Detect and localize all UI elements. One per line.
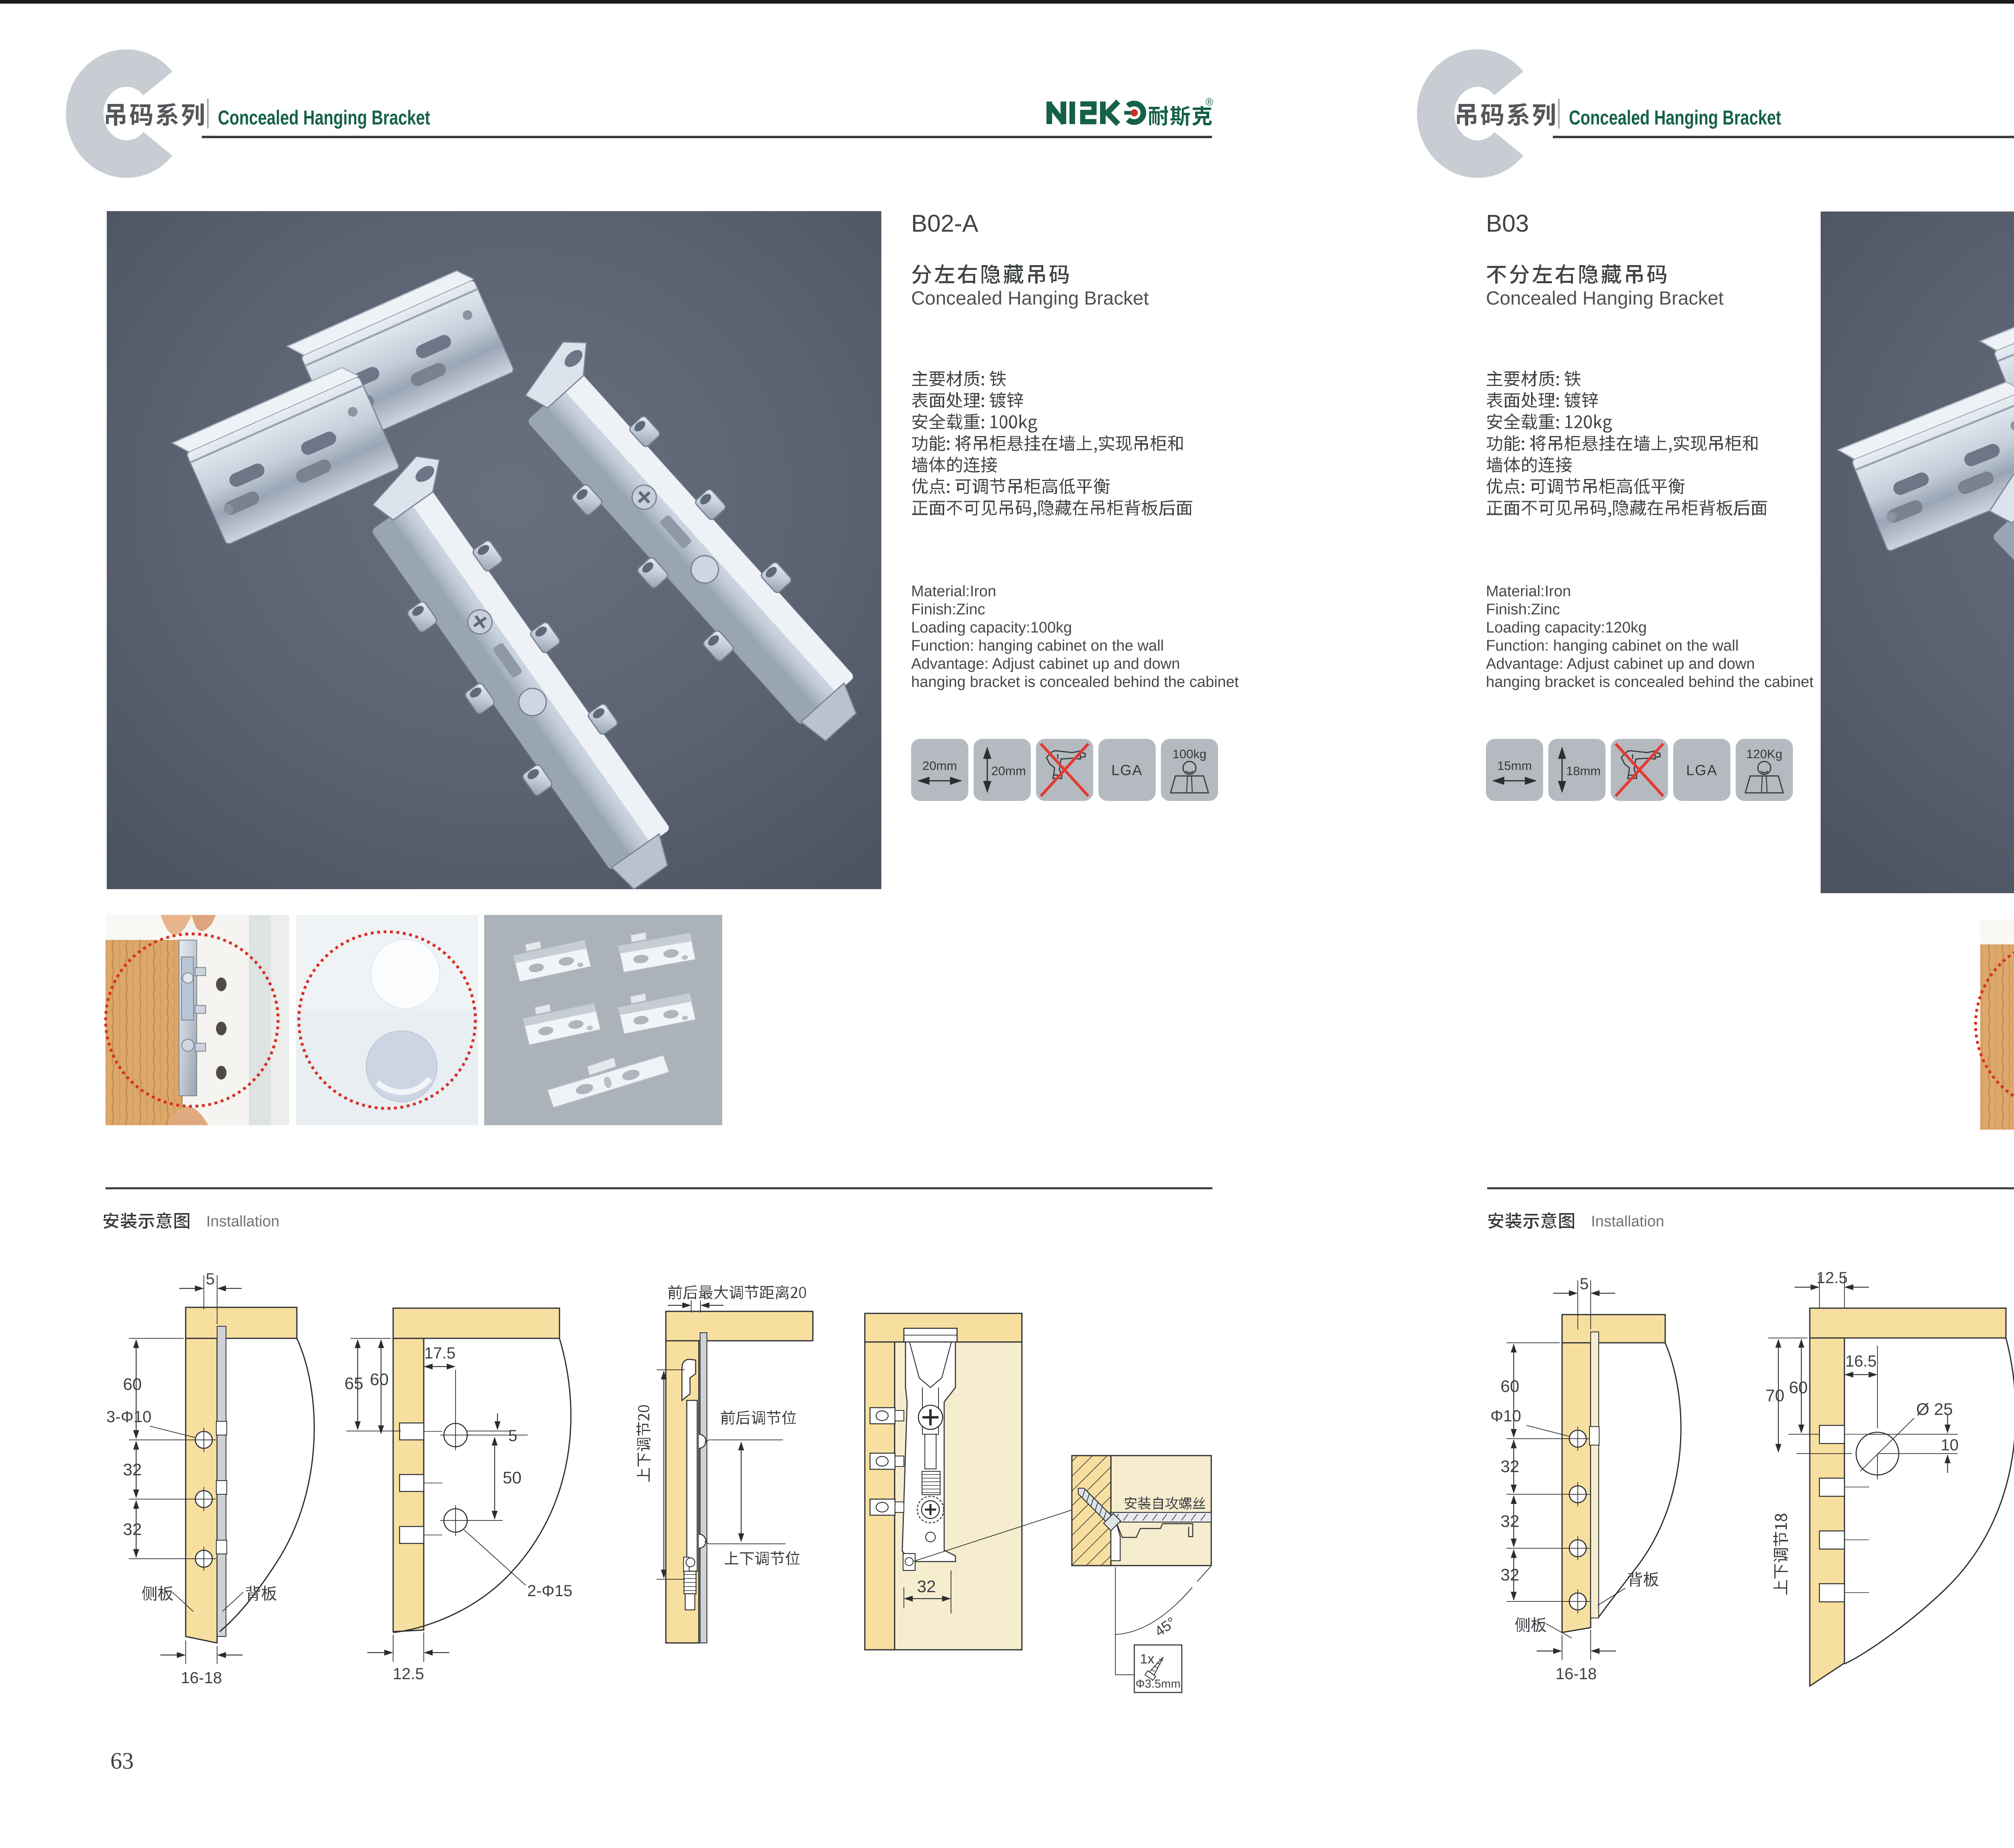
svg-text:5: 5 [508, 1427, 517, 1445]
svg-text:Advantage: Adjust cabinet up a: Advantage: Adjust cabinet up and down [1486, 655, 1755, 672]
svg-text:70: 70 [1765, 1386, 1784, 1405]
svg-text:15mm: 15mm [1497, 759, 1532, 773]
svg-text:Function: hanging cabinet on t: Function: hanging cabinet on the wall [911, 637, 1164, 654]
svg-text:60: 60 [1500, 1377, 1519, 1396]
svg-text:10: 10 [1941, 1436, 1959, 1454]
svg-text:1x: 1x [1140, 1651, 1154, 1667]
svg-text:60: 60 [1789, 1378, 1808, 1397]
svg-text:32: 32 [123, 1520, 142, 1539]
svg-text:B03: B03 [1486, 210, 1529, 237]
svg-text:Concealed Hanging Bracket: Concealed Hanging Bracket [911, 287, 1149, 309]
svg-text:45°: 45° [1152, 1614, 1179, 1640]
svg-text:®: ® [1206, 96, 1213, 108]
svg-text:12.5: 12.5 [393, 1665, 424, 1683]
svg-text:63: 63 [110, 1748, 134, 1774]
svg-text:Finish:Zinc: Finish:Zinc [1486, 601, 1560, 618]
svg-text:Finish:Zinc: Finish:Zinc [911, 601, 985, 618]
svg-text:Installation: Installation [1591, 1213, 1664, 1230]
svg-text:32: 32 [1500, 1457, 1519, 1476]
svg-text:16.5: 16.5 [1845, 1352, 1877, 1370]
svg-text:B02-A: B02-A [911, 210, 978, 237]
svg-text:hanging bracket is concealed b: hanging bracket is concealed behind the … [1486, 674, 1814, 691]
svg-text:Loading capacity:120kg: Loading capacity:120kg [1486, 619, 1647, 636]
svg-text:Φ10: Φ10 [1490, 1407, 1521, 1425]
svg-text:20mm: 20mm [991, 764, 1026, 778]
svg-text:32: 32 [1500, 1565, 1519, 1584]
svg-text:120Kg: 120Kg [1746, 747, 1782, 761]
svg-text:50: 50 [503, 1468, 522, 1487]
svg-text:5: 5 [206, 1270, 215, 1288]
svg-text:Φ3.5mm: Φ3.5mm [1135, 1678, 1181, 1690]
svg-text:LGA: LGA [1686, 762, 1718, 778]
svg-text:17.5: 17.5 [424, 1344, 456, 1362]
svg-text:32: 32 [917, 1577, 936, 1596]
svg-text:65: 65 [344, 1374, 363, 1393]
svg-text:Concealed Hanging Bracket: Concealed Hanging Bracket [1569, 106, 1781, 129]
svg-text:2-Φ15: 2-Φ15 [527, 1582, 572, 1600]
svg-text:12.5: 12.5 [1816, 1269, 1848, 1287]
svg-text:Advantage: Adjust cabinet up a: Advantage: Adjust cabinet up and down [911, 655, 1180, 672]
svg-text:Function: hanging cabinet on t: Function: hanging cabinet on the wall [1486, 637, 1738, 654]
svg-text:Concealed Hanging Bracket: Concealed Hanging Bracket [1486, 287, 1724, 309]
svg-text:Material:Iron: Material:Iron [1486, 583, 1571, 600]
svg-text:32: 32 [1500, 1512, 1519, 1531]
svg-text:60: 60 [370, 1370, 389, 1389]
svg-text:hanging bracket is concealed b: hanging bracket is concealed behind the … [911, 674, 1239, 691]
svg-text:18mm: 18mm [1566, 764, 1601, 778]
svg-text:32: 32 [123, 1460, 142, 1479]
svg-text:60: 60 [123, 1375, 142, 1394]
svg-text:3-Φ10: 3-Φ10 [106, 1408, 151, 1426]
svg-text:Loading capacity:100kg: Loading capacity:100kg [911, 619, 1072, 636]
svg-text:5: 5 [1580, 1275, 1589, 1293]
svg-text:100kg: 100kg [1173, 747, 1206, 761]
svg-text:16-18: 16-18 [181, 1669, 222, 1687]
svg-text:Concealed Hanging Bracket: Concealed Hanging Bracket [218, 106, 430, 129]
svg-text:16-18: 16-18 [1556, 1665, 1597, 1683]
svg-text:Material:Iron: Material:Iron [911, 583, 996, 600]
svg-text:20mm: 20mm [922, 759, 957, 773]
svg-text:LGA: LGA [1111, 762, 1143, 778]
svg-text:Installation: Installation [206, 1213, 280, 1230]
